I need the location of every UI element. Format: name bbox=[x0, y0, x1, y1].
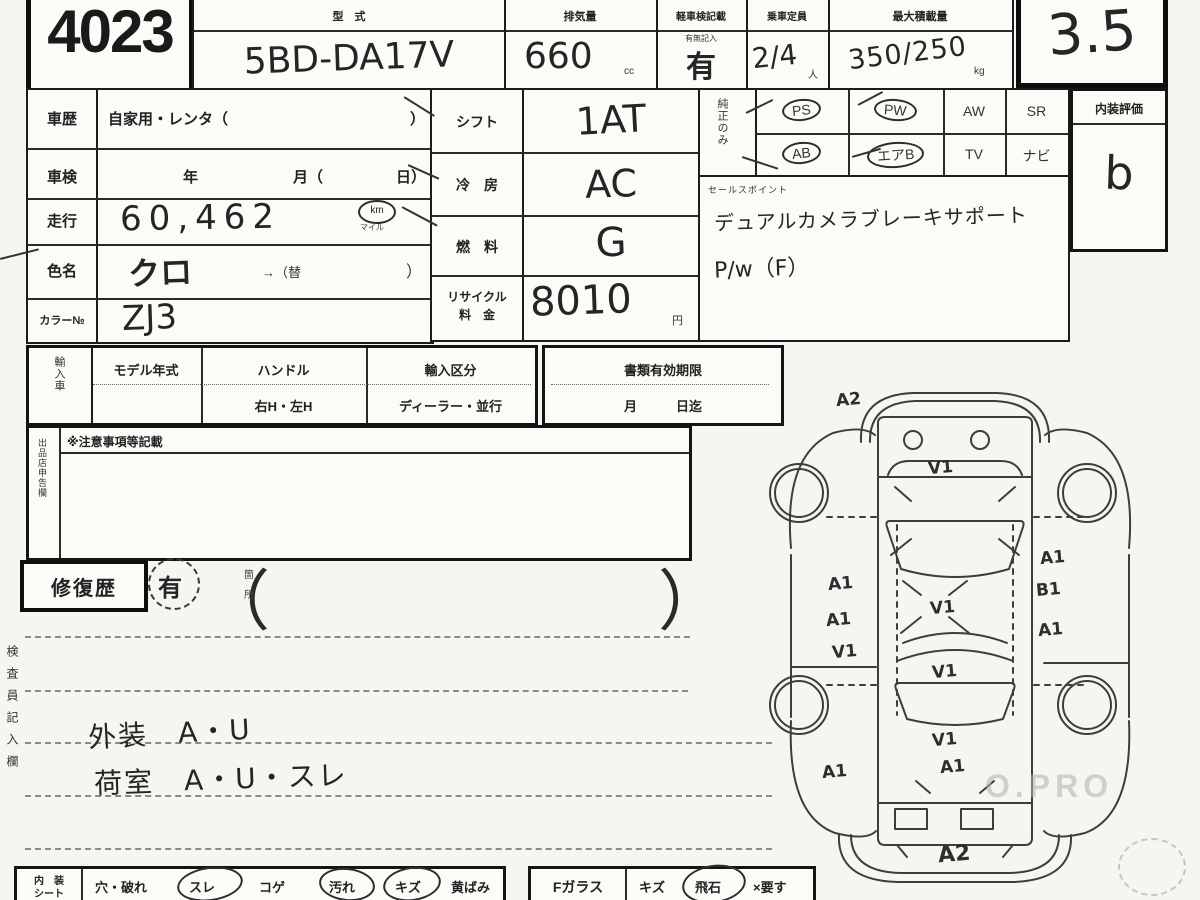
shift-label: シフト bbox=[432, 112, 522, 132]
import-side-label: 輸入車 bbox=[51, 356, 67, 416]
doc-label: 軽車検記載 bbox=[656, 8, 746, 23]
load-label: 最大積載量 bbox=[828, 8, 1012, 24]
colorno-label: カラー№ bbox=[28, 312, 96, 328]
glass-item-kizu: キズ bbox=[639, 877, 665, 896]
left-info-table: 車歴 自家用・レンタ（ ） 車検 年 月（ 日） 走行 60,462 km マイ… bbox=[26, 88, 434, 344]
headlight-right bbox=[971, 431, 989, 449]
model-code-label: 型 式 bbox=[194, 8, 504, 24]
recycle-label-2: 料 金 bbox=[432, 306, 522, 323]
damage-annotation: A2 bbox=[835, 389, 862, 411]
displacement-unit: cc bbox=[624, 66, 634, 77]
grade-value: 3.5 bbox=[1019, 0, 1165, 71]
damage-annotation: A1 bbox=[1039, 547, 1066, 569]
equipment-item-tv: TV bbox=[943, 146, 1005, 162]
model-year-label: モデル年式 bbox=[91, 360, 201, 379]
row-divider bbox=[432, 275, 700, 277]
roof-arc-1 bbox=[903, 633, 1007, 643]
history-value: 自家用・レンタ（ bbox=[108, 108, 228, 129]
fuel-value: G bbox=[521, 217, 700, 269]
cowl-line bbox=[888, 461, 1022, 475]
mileage-unit-km-icon: km bbox=[358, 200, 396, 224]
color-value: クロ bbox=[127, 247, 193, 295]
import-type-options: ディーラー・並行 bbox=[366, 396, 535, 415]
ac-label: 冷 房 bbox=[432, 175, 522, 195]
row-divider bbox=[28, 244, 432, 246]
capacity-unit: 人 bbox=[808, 66, 818, 81]
wheel-rear-left bbox=[770, 676, 828, 734]
documents-options: 月 日迄 bbox=[545, 396, 781, 415]
damage-annotation: A1 bbox=[827, 573, 854, 595]
damage-annotation: V1 bbox=[931, 729, 958, 751]
recycle-label-1: リサイクル bbox=[432, 288, 522, 305]
equipment-item-ab: AB bbox=[755, 142, 848, 164]
repair-history-label: 修復歴 bbox=[24, 572, 144, 601]
capacity-value: 2/4 bbox=[750, 38, 798, 76]
damage-annotation: V1 bbox=[931, 661, 958, 683]
notes-side-label: 出品店申告欄 bbox=[36, 438, 49, 550]
vehicle-diagram bbox=[770, 383, 1150, 890]
handle-label: ハンドル bbox=[201, 360, 366, 379]
row-divider bbox=[755, 133, 1068, 135]
grade-box: 3.5 bbox=[1016, 0, 1168, 88]
wheel-rear-left-inner bbox=[775, 681, 823, 729]
watermark-circle bbox=[1118, 838, 1186, 896]
mileage-value: 60,462 bbox=[120, 197, 282, 240]
doc-value: 有 bbox=[656, 42, 746, 86]
equipment-item-airb-circle: エアB bbox=[866, 140, 925, 170]
roof-arc-2 bbox=[897, 650, 1013, 661]
shaken-label: 車検 bbox=[28, 166, 96, 187]
sales-point-line1: デュアルカメラブレーキサポート bbox=[714, 199, 1028, 236]
documents-box: 書類有効期限 月 日迄 bbox=[542, 345, 784, 426]
repair-history-box: 修復歴 bbox=[20, 560, 148, 612]
shaken-year: 年 bbox=[183, 166, 198, 187]
row-divider bbox=[432, 152, 700, 154]
mid-info-table: シフト 1AT 冷 房 AC 燃 料 G リサイクル 料 金 8010 円 bbox=[430, 88, 702, 342]
equipment-side-label: 純正のみ bbox=[714, 98, 730, 170]
rule-line bbox=[25, 690, 688, 692]
wheel-front-right-inner bbox=[1063, 469, 1111, 517]
load-unit: kg bbox=[974, 66, 985, 77]
damage-annotation: A1 bbox=[939, 756, 966, 778]
repair-paren-close: ） bbox=[658, 548, 724, 644]
mileage-label: 走行 bbox=[28, 210, 96, 231]
dotted-divider bbox=[551, 384, 769, 385]
lot-number-box: 4023 bbox=[26, 0, 194, 95]
inspector-note-exterior: 外装 A・U bbox=[87, 708, 253, 757]
hatch-marks-rear bbox=[916, 781, 994, 793]
sales-point-line2: P/w（F） bbox=[713, 249, 809, 284]
recycle-unit: 円 bbox=[672, 312, 683, 328]
load-value: 350/250 bbox=[847, 31, 969, 76]
license-plate-right bbox=[961, 809, 993, 829]
header-divider bbox=[194, 30, 1012, 32]
wheel-front-right bbox=[1058, 464, 1116, 522]
interior-seat-label-2: シート bbox=[17, 885, 81, 900]
label-col-divider bbox=[96, 90, 98, 342]
history-close: ） bbox=[410, 108, 425, 129]
recycle-value: 8010 bbox=[529, 276, 632, 326]
seat-item-sure-circle bbox=[175, 863, 245, 900]
interior-eval-box: 内装評価 b bbox=[1070, 88, 1168, 252]
repair-paren-note1: 箇 bbox=[244, 566, 254, 581]
left-front-fender bbox=[790, 429, 875, 548]
dotted-divider bbox=[93, 384, 531, 385]
rule-line bbox=[25, 848, 772, 850]
color-change-field: →（替 bbox=[262, 262, 301, 281]
label-col-divider bbox=[625, 869, 627, 900]
row-divider bbox=[59, 452, 689, 454]
seat-item-koge: コゲ bbox=[259, 877, 285, 896]
header-table: 型 式 排気量 軽車検記載 乗車定員 最大積載量 5BD-DA17V 660 c… bbox=[192, 0, 1014, 92]
damage-annotation: A1 bbox=[825, 609, 852, 631]
rule-line bbox=[25, 636, 690, 638]
wheel-rear-right-inner bbox=[1063, 681, 1111, 729]
seat-item-hole: 穴・破れ bbox=[95, 877, 147, 896]
color-label: 色名 bbox=[28, 260, 96, 281]
damage-annotation: A2 bbox=[937, 841, 971, 869]
watermark: O.PRO bbox=[985, 768, 1113, 805]
documents-label: 書類有効期限 bbox=[545, 360, 781, 379]
glass-item-tobiishi-circle bbox=[680, 861, 749, 900]
windshield bbox=[886, 521, 1023, 577]
seat-item-kizu-circle bbox=[381, 863, 443, 900]
notes-header: ※注意事項等記載 bbox=[67, 433, 163, 450]
equipment-item-sr: SR bbox=[1005, 103, 1068, 119]
license-plate-left bbox=[895, 809, 927, 829]
label-col-divider bbox=[59, 428, 61, 558]
equipment-item-ab-circle: AB bbox=[781, 140, 822, 166]
repair-paren-open: （ bbox=[204, 548, 270, 644]
seat-item-yogore-circle bbox=[317, 865, 376, 900]
ac-value: AC bbox=[521, 159, 700, 209]
color-change-close: ） bbox=[406, 258, 422, 282]
capacity-label: 乗車定員 bbox=[746, 8, 828, 23]
headlight-left bbox=[904, 431, 922, 449]
wheel-front-left-inner bbox=[775, 469, 823, 517]
handle-options: 右H・左H bbox=[201, 396, 366, 415]
notes-box: 出品店申告欄 ※注意事項等記載 bbox=[26, 425, 692, 561]
interior-seat-box: 内 装 シート 穴・破れ スレ コゲ 汚れ キズ 黄ばみ bbox=[14, 866, 506, 900]
sales-point-box: セールスポイント デュアルカメラブレーキサポート P/w（F） bbox=[698, 175, 1070, 342]
row-divider bbox=[28, 298, 432, 300]
rear-window bbox=[895, 683, 1014, 725]
repair-yes-value: 有 bbox=[158, 568, 182, 603]
displacement-label: 排気量 bbox=[504, 8, 656, 24]
damage-annotation: B1 bbox=[1035, 579, 1061, 601]
inspector-side-label: 検査員記入欄 bbox=[4, 645, 21, 855]
damage-annotation: V1 bbox=[929, 597, 956, 619]
label-col-divider bbox=[81, 869, 83, 900]
equipment-item-ps-circle: PS bbox=[781, 97, 822, 123]
mileage-unit-sub: マイル bbox=[360, 222, 384, 233]
equipment-table: 純正のみ PS PW AW SR AB エアB TV ナビ bbox=[698, 88, 1070, 179]
import-type-label: 輸入区分 bbox=[366, 360, 535, 379]
interior-eval-value: b bbox=[1072, 144, 1166, 201]
lot-number: 4023 bbox=[31, 0, 189, 66]
repair-paren-note2: 所 bbox=[244, 586, 254, 601]
displacement-value: 660 bbox=[524, 36, 593, 77]
auction-sheet: 4023 型 式 排気量 軽車検記載 乗車定員 最大積載量 5BD-DA17V … bbox=[0, 0, 1200, 900]
front-glass-label: Fガラス bbox=[531, 877, 625, 897]
shaken-month: 月（ bbox=[293, 166, 323, 187]
front-bumper-inner bbox=[870, 401, 1040, 442]
equipment-item-navi: ナビ bbox=[1005, 146, 1068, 166]
damage-annotation: V1 bbox=[927, 457, 954, 479]
seat-item-kibami: 黄ばみ bbox=[451, 877, 490, 896]
model-code-value: 5BD-DA17V bbox=[193, 33, 504, 85]
row-divider bbox=[1073, 123, 1165, 125]
wheel-front-left bbox=[770, 464, 828, 522]
equipment-item-aw: AW bbox=[943, 103, 1005, 119]
wheel-rear-right bbox=[1058, 676, 1116, 734]
row-divider bbox=[432, 215, 700, 217]
colorno-value: ZJ3 bbox=[121, 297, 177, 339]
shift-value: 1AT bbox=[521, 93, 701, 146]
sales-point-label: セールスポイント bbox=[708, 183, 788, 196]
history-label: 車歴 bbox=[28, 108, 96, 129]
interior-eval-label: 内装評価 bbox=[1073, 100, 1165, 117]
import-table: 輸入車 モデル年式 ハンドル 右H・左H 輸入区分 ディーラー・並行 bbox=[26, 345, 538, 426]
wheel-dash-lines bbox=[827, 517, 1083, 685]
damage-annotation: V1 bbox=[831, 641, 858, 663]
fuel-label: 燃 料 bbox=[432, 237, 522, 257]
damage-annotation: A1 bbox=[1037, 619, 1064, 641]
equipment-item-pw-circle: PW bbox=[873, 97, 917, 123]
row-divider bbox=[28, 148, 432, 150]
damage-annotation: A1 bbox=[821, 761, 848, 783]
